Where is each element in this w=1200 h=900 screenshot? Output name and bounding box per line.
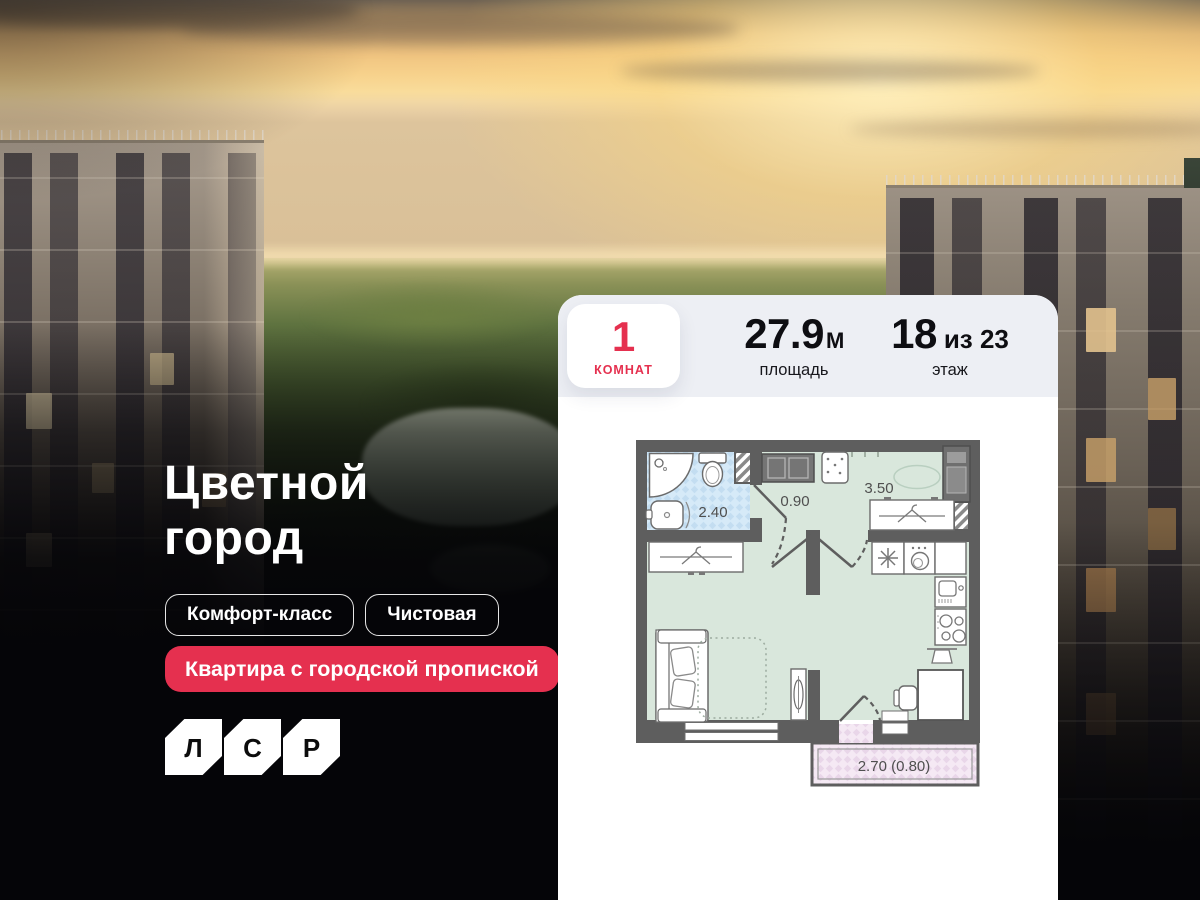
counter-icon: [935, 542, 966, 574]
card-header: 1 КОМНАТ 27.9М площадь 18из 23 этаж: [558, 295, 1058, 397]
floor-label: этаж: [932, 361, 968, 380]
area-label: площадь: [760, 361, 829, 380]
cloud: [620, 60, 1040, 82]
developer-logo-lsr: Л С Р: [165, 719, 340, 775]
vignette-corner: [0, 0, 420, 220]
label-kitchen-area: 3.50: [864, 480, 893, 497]
logo-letter: С: [243, 731, 262, 764]
kitchen-sink-icon: [935, 577, 966, 607]
vent-shaft-icon: [954, 502, 969, 530]
floor-value: 18: [891, 310, 937, 357]
fridge-icon: [872, 542, 904, 574]
rooms-value: 1: [612, 316, 635, 358]
tag-list: Комфорт-класс Чистовая: [165, 594, 499, 636]
logo-letter: Л: [184, 731, 202, 764]
project-title: Цветной город: [164, 456, 369, 566]
area-unit: М: [826, 328, 844, 353]
city-registration-badge: Квартира с городской пропиской: [165, 646, 559, 692]
dishwasher-icon: [904, 542, 935, 574]
floorplan: 2.40 0.90 3.50 2.70 (0.80): [636, 440, 980, 788]
floor-stat: 18из 23 этаж: [864, 295, 1036, 397]
logo-letter: Р: [303, 731, 320, 764]
bath-sink-icon: [646, 501, 690, 529]
vent-shaft-icon: [735, 452, 751, 483]
logo-tile: Р: [283, 719, 340, 775]
logo-tile: Л: [165, 719, 222, 775]
rooms-label: КОМНАТ: [594, 363, 653, 377]
oval-table-icon: [894, 466, 940, 489]
closet-icon: [762, 454, 814, 482]
promo-banner: Цветной город Комфорт-класс Чистовая Ква…: [0, 0, 1200, 900]
washing-machine-icon: [822, 452, 848, 483]
rooms-stat: 1 КОМНАТ: [567, 304, 680, 388]
wardrobe-left-icon: [649, 542, 743, 575]
logo-tile: С: [224, 719, 281, 775]
mirror-shelf-icon: [791, 669, 806, 720]
tag-finishing: Чистовая: [365, 594, 498, 636]
apartment-card[interactable]: 1 КОМНАТ 27.9М площадь 18из 23 этаж: [558, 295, 1058, 900]
floorplan-svg: 2.40 0.90 3.50 2.70 (0.80): [636, 440, 980, 788]
wardrobe-right-icon: [870, 497, 954, 530]
label-hallway-area: 0.90: [780, 493, 809, 510]
floor-of-total: из 23: [944, 324, 1009, 354]
tag-comfort-class: Комфорт-класс: [165, 594, 354, 636]
label-bathroom-area: 2.40: [698, 504, 727, 521]
tall-cabinet-icon: [943, 446, 970, 502]
sofa-icon: [656, 630, 708, 722]
area-value: 27.9: [744, 310, 824, 357]
label-balcony-area: 2.70 (0.80): [858, 758, 931, 775]
stove-icon: [935, 609, 966, 645]
